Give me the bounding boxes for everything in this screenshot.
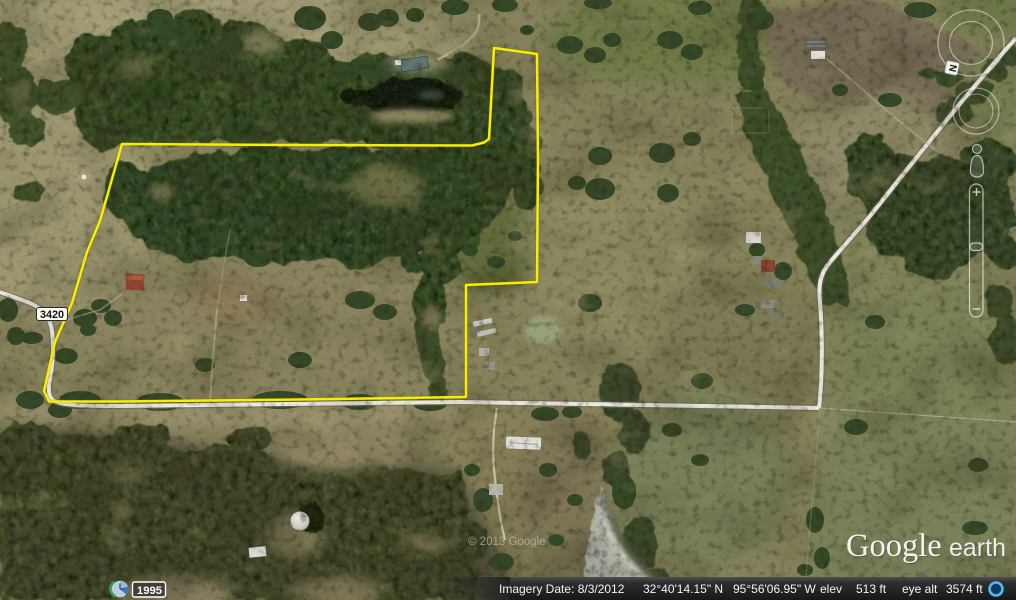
svg-text:3574 ft: 3574 ft — [946, 582, 983, 596]
svg-text:elev: elev — [820, 582, 842, 596]
svg-text:32°40'14.15" N: 32°40'14.15" N — [643, 582, 723, 596]
svg-text:513 ft: 513 ft — [856, 582, 887, 596]
svg-text:© 2013 Google: © 2013 Google — [468, 536, 546, 548]
svg-text:earth: earth — [949, 534, 1006, 562]
svg-text:eye alt: eye alt — [902, 582, 938, 596]
svg-text:3420: 3420 — [40, 309, 64, 321]
svg-text:Google: Google — [846, 528, 942, 564]
svg-text:95°56'06.95" W: 95°56'06.95" W — [733, 582, 816, 596]
svg-text:Imagery Date: 8/3/2012: Imagery Date: 8/3/2012 — [499, 582, 625, 596]
svg-text:1995: 1995 — [137, 585, 162, 597]
